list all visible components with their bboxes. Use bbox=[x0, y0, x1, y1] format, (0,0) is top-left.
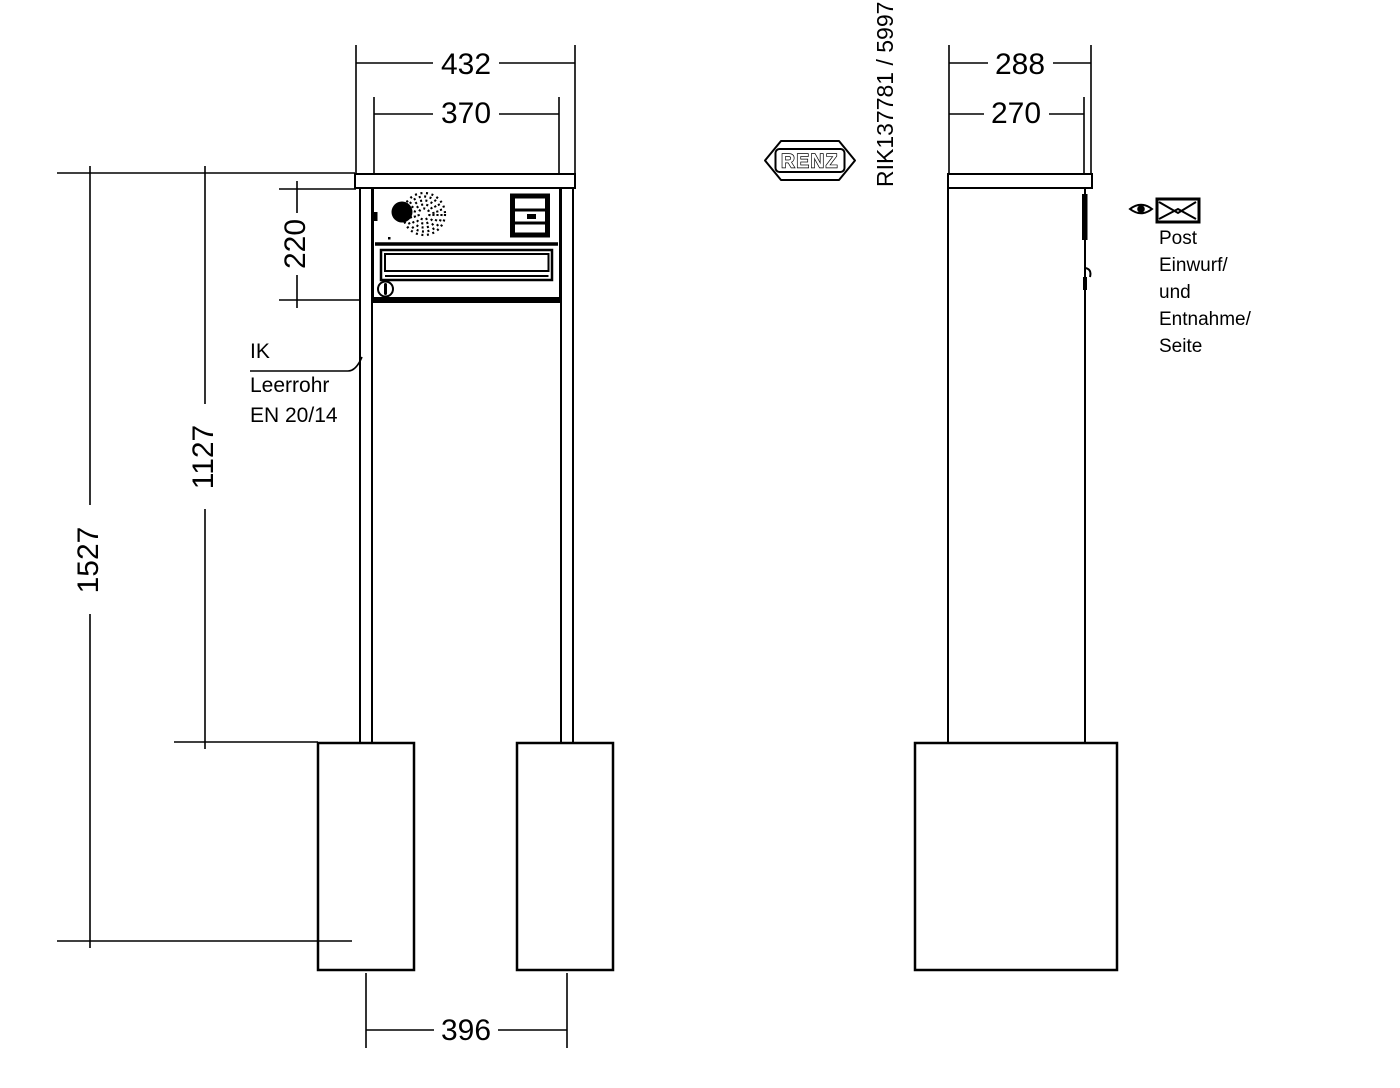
part-number: RIK137781 / 5997 bbox=[872, 2, 898, 187]
conduit-note-line2: Leerrohr bbox=[250, 374, 329, 397]
dim-post-height-label: 1127 bbox=[187, 425, 220, 490]
dim-plate-depth-label: 288 bbox=[995, 48, 1045, 81]
letter-slot bbox=[381, 250, 552, 280]
drawing-canvas: 1527 1127 432 370 220 bbox=[0, 0, 1400, 1088]
dim-box-width-label: 370 bbox=[441, 97, 491, 130]
mail-note-line3: und bbox=[1159, 282, 1191, 303]
hinge-mark bbox=[373, 212, 378, 221]
mail-note-line1: Post bbox=[1159, 228, 1198, 249]
conduit-note-line1: IK bbox=[250, 340, 270, 363]
envelope-body bbox=[1157, 199, 1199, 222]
bell-button bbox=[527, 214, 536, 219]
rivet-dot bbox=[388, 237, 391, 240]
lock-side-profile bbox=[1083, 277, 1087, 290]
mail-note-line5: Seite bbox=[1159, 336, 1202, 357]
dim-box-depth-label: 270 bbox=[991, 97, 1041, 130]
dim-total-height-label: 1527 bbox=[72, 527, 105, 594]
letterbox-bottom-edge bbox=[373, 297, 560, 303]
dim-plate-width-label: 432 bbox=[441, 48, 491, 81]
envelope-icon bbox=[1157, 199, 1199, 222]
bell-panel-icon bbox=[513, 196, 548, 235]
renz-logo-text: RENZ bbox=[781, 152, 839, 173]
dim-box-height-label: 220 bbox=[279, 219, 312, 269]
conduit-note-line3: EN 20/14 bbox=[250, 404, 338, 427]
eye-icon bbox=[1130, 205, 1152, 214]
keyhole-icon bbox=[378, 282, 393, 297]
dim-post-spacing-label: 396 bbox=[441, 1014, 491, 1047]
letter-flap-side-profile bbox=[1082, 194, 1088, 240]
mail-note-line4: Entnahme/ bbox=[1159, 309, 1252, 330]
letter-slot-flap bbox=[385, 254, 549, 271]
mail-note-line2: Einwurf/ bbox=[1159, 255, 1228, 276]
background bbox=[0, 0, 1400, 1088]
technical-drawing: 1527 1127 432 370 220 bbox=[0, 0, 1400, 1088]
eye-pupil bbox=[1137, 205, 1145, 213]
